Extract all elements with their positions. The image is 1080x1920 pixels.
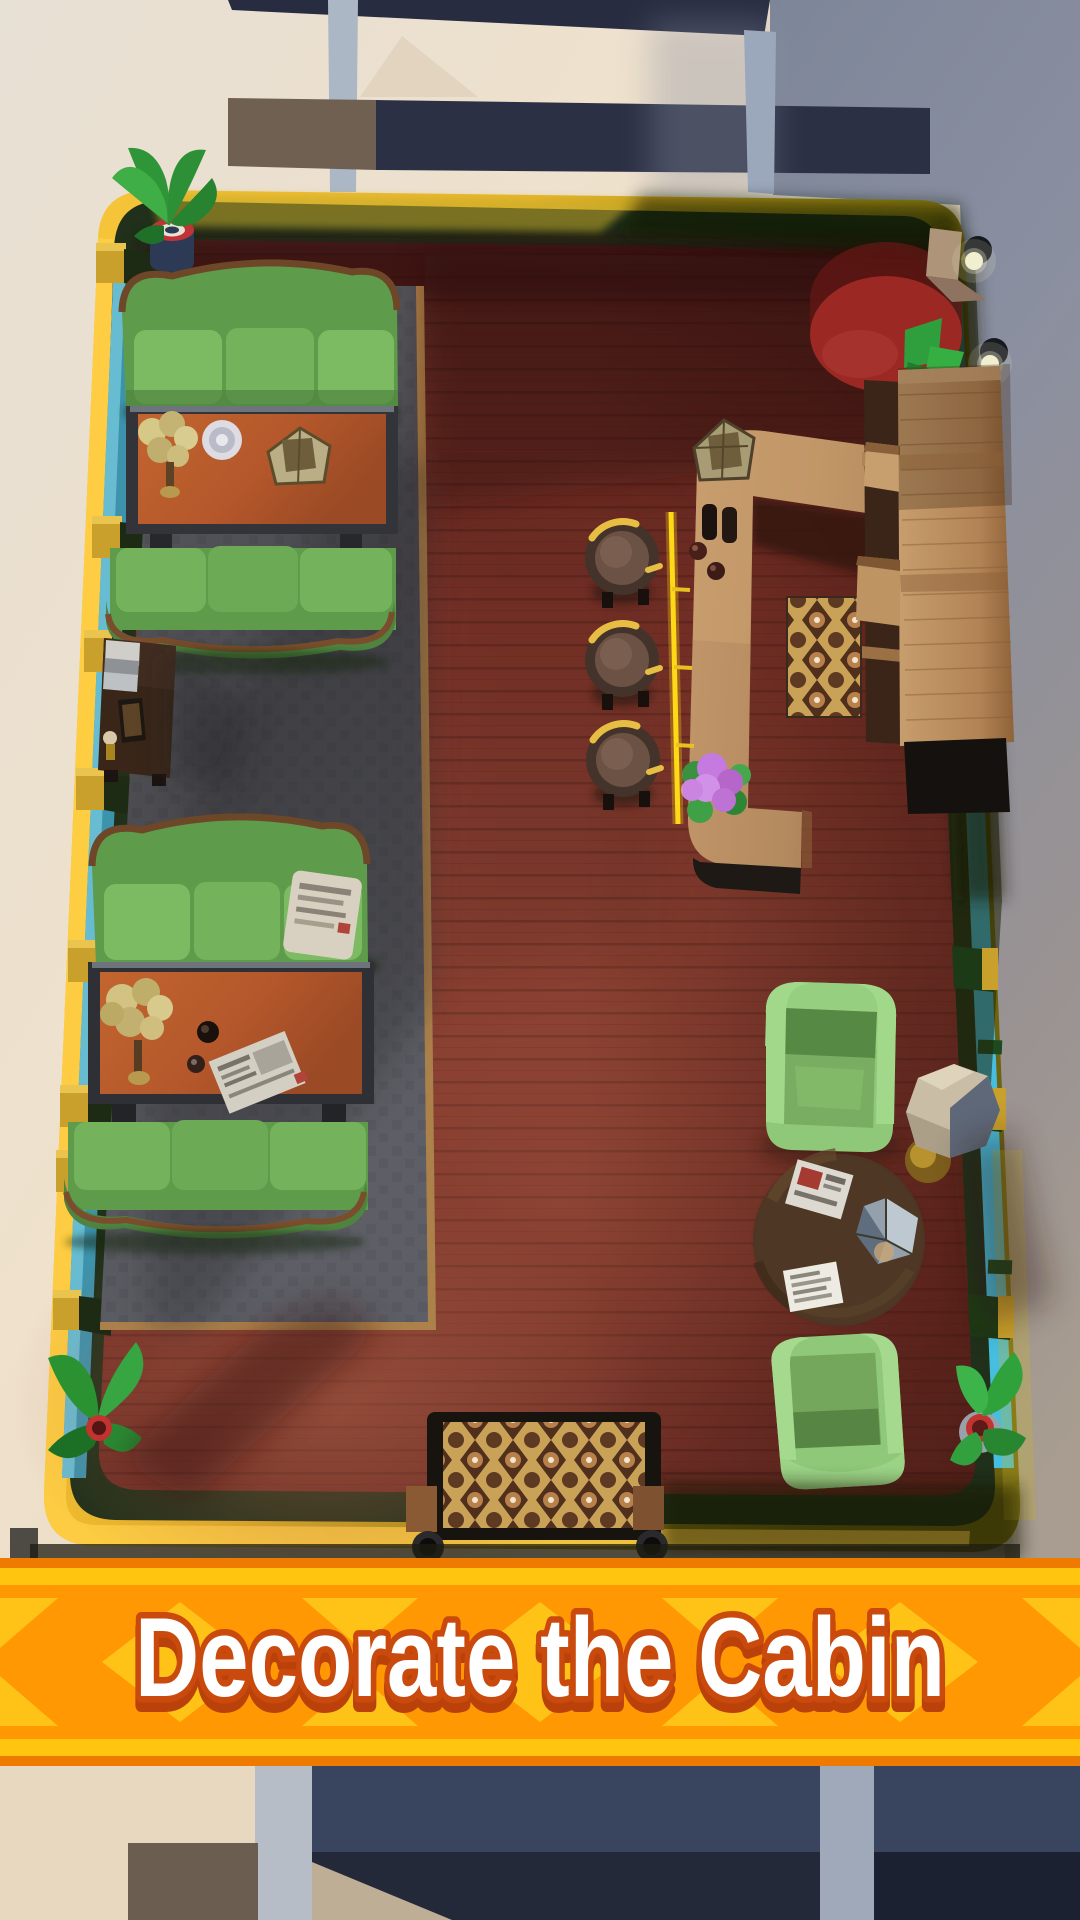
svg-text:Decorate the Cabin: Decorate the Cabin bbox=[135, 1595, 945, 1720]
